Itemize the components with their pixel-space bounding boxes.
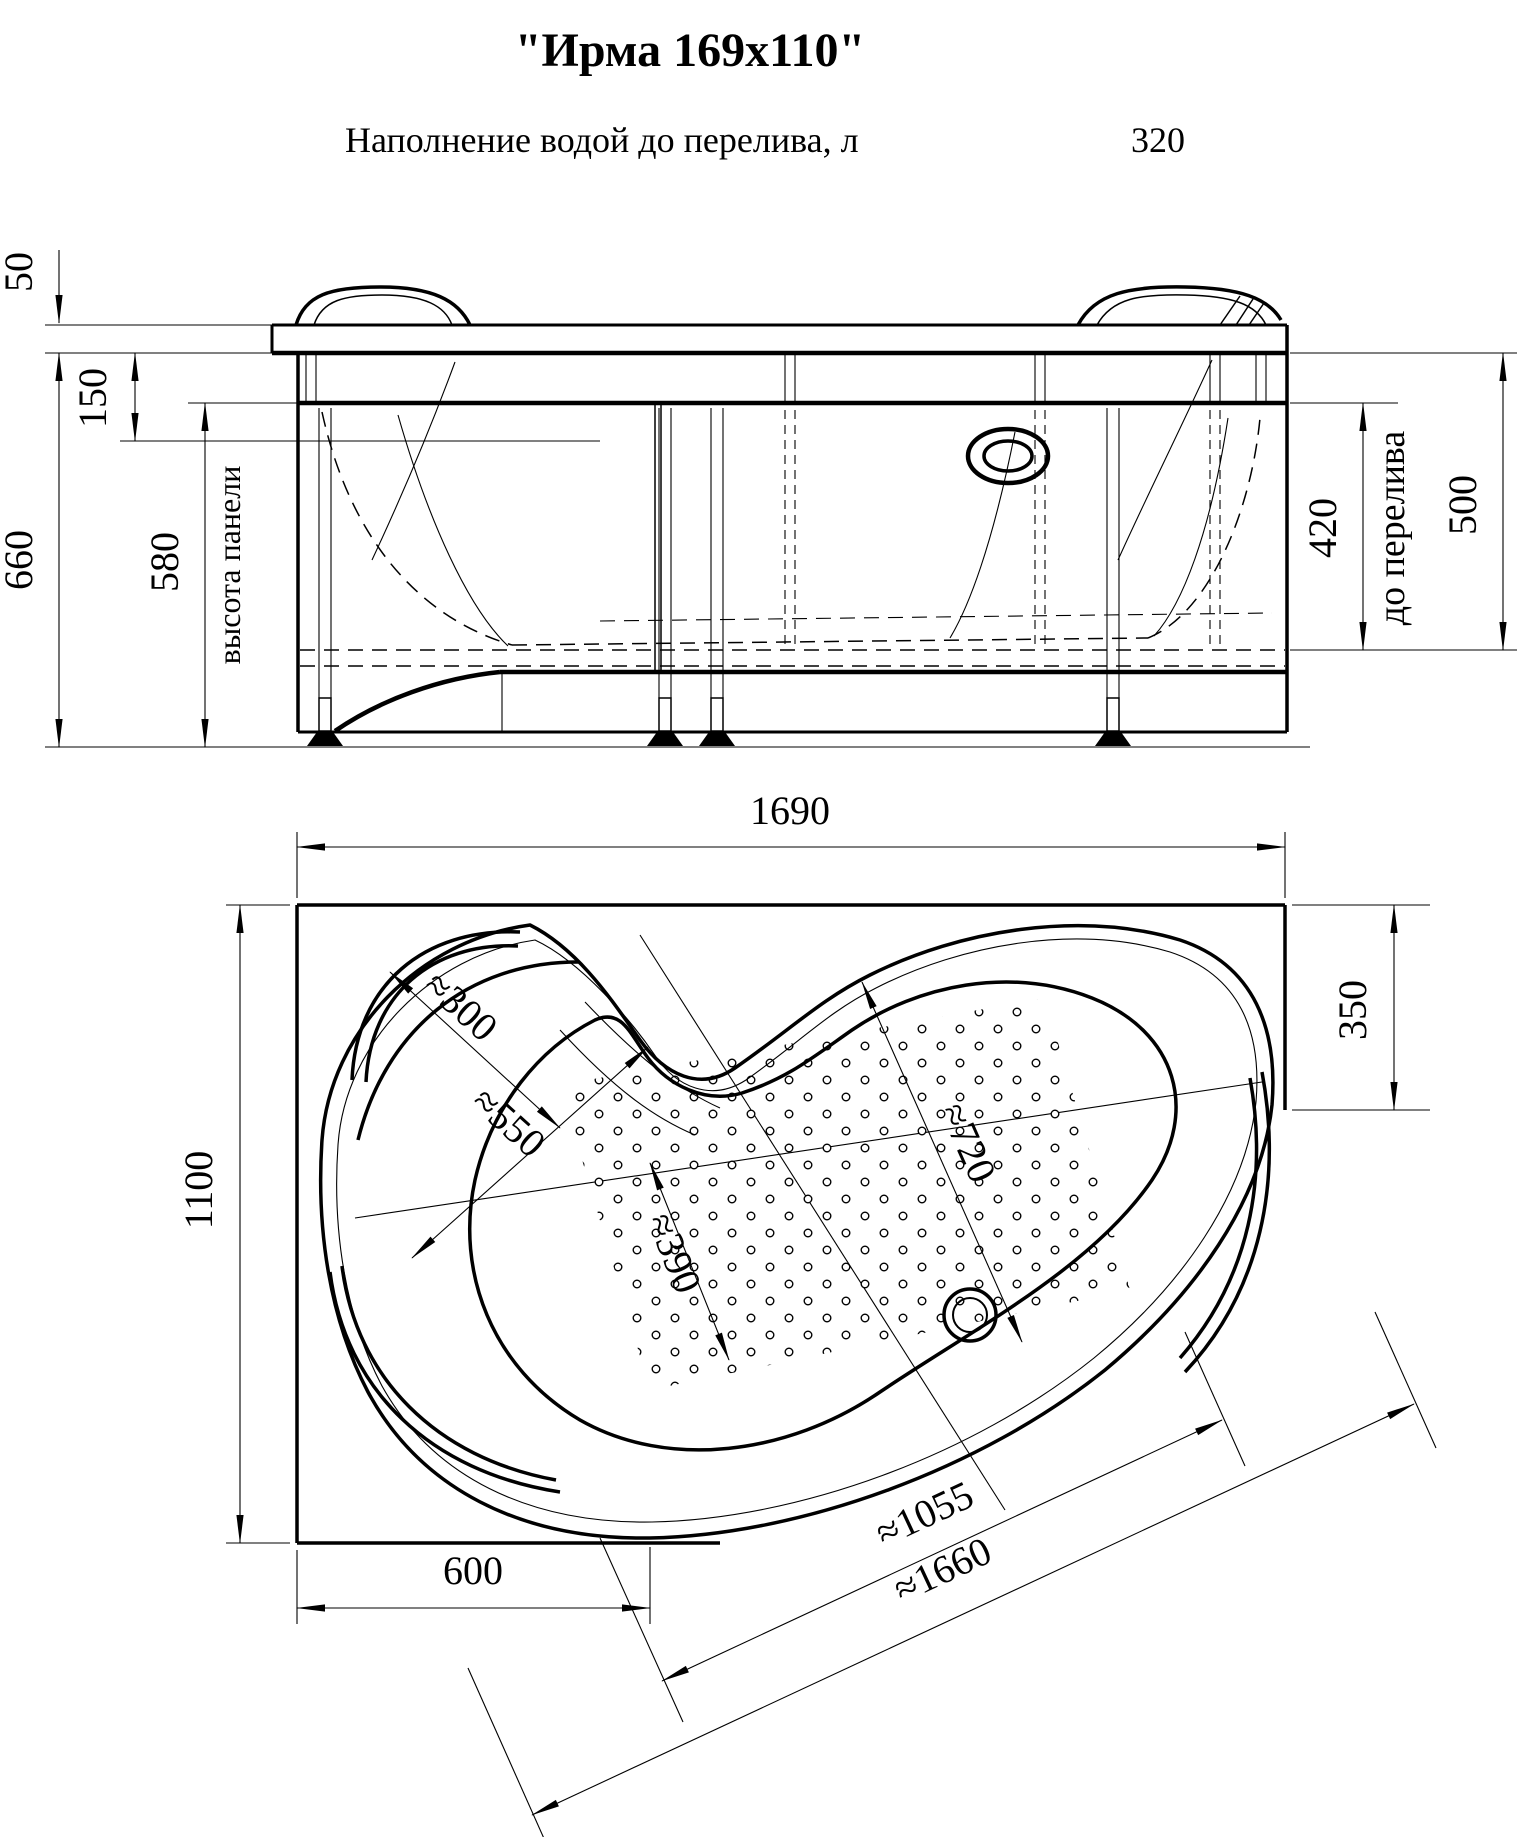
dim-total-height-660: 660 bbox=[0, 530, 41, 590]
dim-bottom-left-600: 600 bbox=[443, 1548, 503, 1593]
fill-volume-value: 320 bbox=[1131, 120, 1185, 160]
to-overflow-label: до перелива bbox=[1371, 431, 1413, 626]
handle-arc-right bbox=[1180, 1072, 1269, 1372]
frame-hidden-posts bbox=[785, 410, 1220, 648]
overflow-fitting bbox=[968, 429, 1048, 483]
bathtub-technical-drawing: "Ирма 169x110" Наполнение водой до перел… bbox=[0, 0, 1517, 1837]
panel-height-label: высота панели bbox=[211, 466, 247, 665]
right-headrest bbox=[1078, 287, 1281, 325]
tub-rim-band bbox=[272, 325, 1287, 353]
foot bbox=[647, 408, 683, 746]
fill-volume-label: Наполнение водой до перелива, л bbox=[345, 120, 859, 160]
foot bbox=[699, 408, 735, 746]
dim-top-offset-150: 150 bbox=[70, 368, 115, 428]
dim-length-1690: 1690 bbox=[750, 788, 830, 833]
dim-bottom-left-group: 600 bbox=[297, 1547, 650, 1624]
dim-line-total-diagonal bbox=[532, 1404, 1414, 1815]
dim-right-side-group: 350 bbox=[1292, 905, 1430, 1110]
hidden-bowl-lines bbox=[300, 412, 1285, 666]
dim-to-overflow-420: 420 bbox=[1300, 498, 1345, 558]
front-right-dimensions: 420 до перелива 500 bbox=[1290, 353, 1517, 650]
dim-length-group: 1690 bbox=[297, 788, 1285, 898]
left-headrest bbox=[296, 287, 470, 325]
dim-rim-to-overflow-500: 500 bbox=[1440, 475, 1485, 535]
adjustable-feet bbox=[307, 408, 1131, 746]
dim-rim-50: 50 bbox=[0, 252, 41, 292]
front-view: 50 660 150 580 высота панели 420 до пере… bbox=[0, 250, 1517, 747]
handle-arc-bottom-left bbox=[330, 1266, 560, 1492]
dim-width-group: 1100 bbox=[176, 905, 290, 1543]
plan-view: 1690 1100 350 600 bbox=[176, 788, 1436, 1837]
foot bbox=[307, 408, 343, 746]
foot bbox=[1095, 408, 1131, 746]
page-title: "Ирма 169x110" bbox=[515, 24, 865, 77]
drawing-sheet: "Ирма 169x110" Наполнение водой до перел… bbox=[0, 0, 1517, 1837]
frame-post-tops bbox=[306, 355, 1266, 402]
dim-seat-width-550: ≈550 bbox=[464, 1078, 555, 1166]
dim-right-side-350: 350 bbox=[1330, 980, 1375, 1040]
dim-width-1100: 1100 bbox=[176, 1151, 221, 1230]
header: "Ирма 169x110" Наполнение водой до перел… bbox=[345, 24, 1185, 160]
dim-panel-height-580: 580 bbox=[142, 532, 187, 592]
